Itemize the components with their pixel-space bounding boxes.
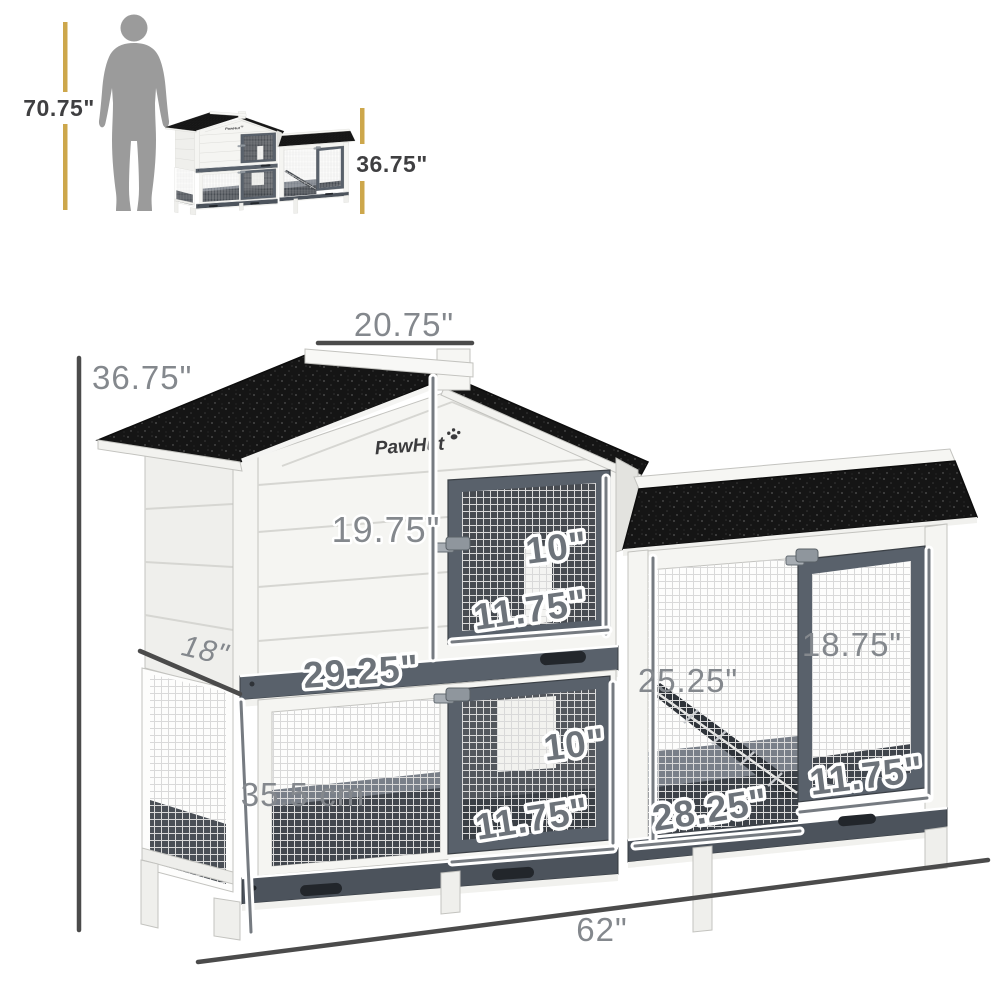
dim-label-run-height: 25.25" <box>638 662 738 699</box>
dim-label-overall-height: 36.75" <box>92 359 192 396</box>
lower-side-mesh-panel <box>142 668 233 892</box>
run-left-post <box>628 550 648 851</box>
dim-label-run-door-height: 18.75" <box>802 626 902 663</box>
leg-front-left <box>214 898 240 940</box>
scale-reference: 70.75" 36.75" <box>23 15 427 215</box>
product-dimension-diagram: PawHut <box>0 0 1000 1000</box>
dim-label-overall-width: 62" <box>576 911 627 948</box>
person-silhouette <box>99 15 169 212</box>
dim-label-upper-door-height: 10" <box>523 523 589 571</box>
dim-label-roof-top: 20.75" <box>354 306 454 343</box>
diagram-canvas: PawHut <box>0 0 1000 1000</box>
leg-back-left <box>141 860 158 928</box>
product-thumbnail <box>165 111 355 214</box>
run-leg-left <box>693 846 712 932</box>
dim-label-lower-door-height: 10" <box>541 720 607 768</box>
person-height-label: 70.75" <box>23 95 94 121</box>
dim-label-face-height: 19.75" <box>332 509 441 550</box>
dim-label-hutch-width: 29.25" <box>302 647 421 696</box>
house-corner-post <box>233 440 258 700</box>
leg-front-middle <box>441 871 460 914</box>
product-height-label: 36.75" <box>356 151 427 177</box>
dim-label-lower-height: 35.5 cm <box>241 776 365 813</box>
